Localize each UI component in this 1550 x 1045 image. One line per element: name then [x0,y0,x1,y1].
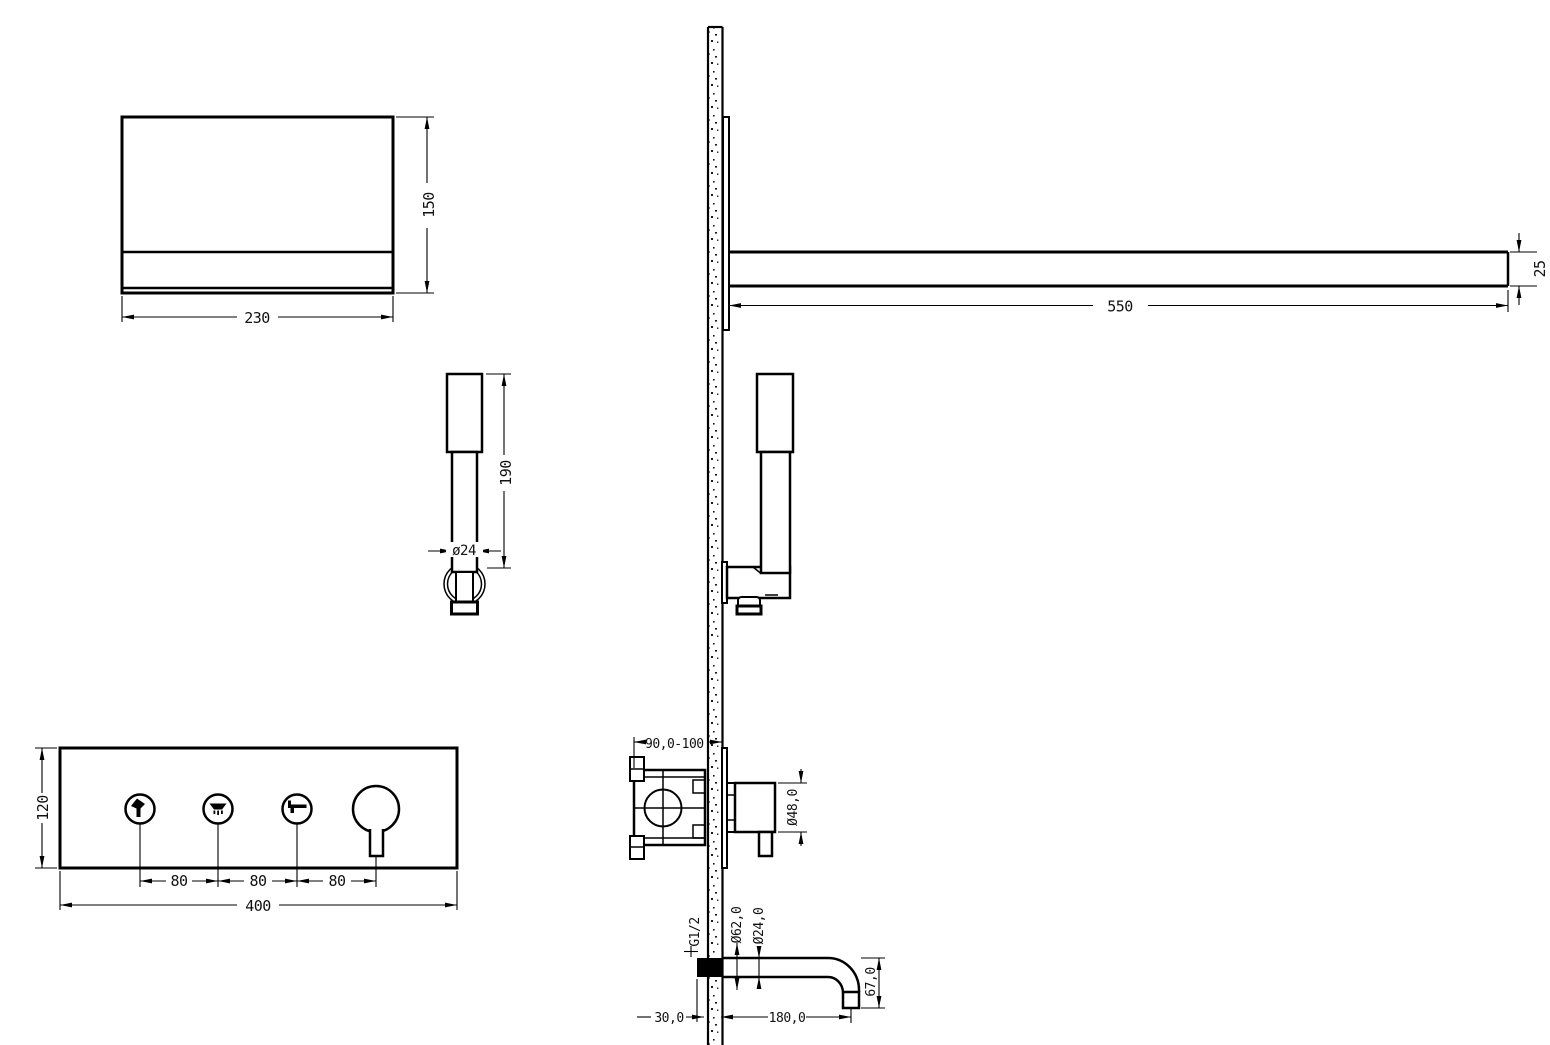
valve-knob-body [735,783,775,832]
button-bath-spout [283,795,312,824]
dim-spout-wall-stub: 30,0 [654,1011,683,1026]
dim-button-spacing-1: 80 [170,872,188,890]
dim-spout-reach: 180,0 [769,1011,806,1026]
dim-shower-head-height: 150 [420,192,438,218]
temperature-knob-icon [353,786,399,832]
dim-valve-install-depth: 90,0-100 [645,737,704,752]
view-hand-shower-front: ø24 190 [428,374,515,614]
spout-thread-block [697,958,723,977]
dim-knob-diameter: Ø48,0 [786,789,801,826]
dim-button-spacing-3: 80 [328,872,346,890]
view-shower-head-front: 230 150 [122,117,438,327]
dim-shower-head-length: 550 [1107,298,1133,316]
dim-spout-drop-height: 67,0 [864,967,879,996]
valve-knob-handle [759,832,772,856]
hand-shower-head-side [757,374,793,452]
dim-spout-pipe-diameter: Ø24,0 [752,908,767,945]
wall-hatch [708,27,723,1045]
technical-drawing-page: 230 150 25 550 ø24 [0,0,1550,1045]
dim-panel-height: 120 [34,795,52,821]
shower-head-body [122,117,393,293]
shower-system-dimension-drawing: 230 150 25 550 ø24 [0,0,1550,1045]
view-hand-shower-side [722,374,793,614]
hand-shower-connector [456,572,473,602]
shower-arm-wall-plate [723,117,729,330]
spout-outlet-cap [843,992,859,1008]
dim-hand-shower-diameter: ø24 [452,543,476,559]
dim-button-spacing-2: 80 [249,872,267,890]
wall-section [708,27,723,1045]
spout-elbow-outer [828,958,859,992]
knob-handle-stub [370,829,383,856]
dim-shower-head-thickness: 25 [1531,260,1549,277]
spout-elbow-inner [828,977,843,992]
view-shower-arm-side: 25 550 [723,117,1549,330]
dim-spout-escutcheon: Ø62,0 [730,907,745,944]
label-spout-thread: G1/2 [688,917,703,946]
dim-panel-width: 400 [245,897,271,915]
view-control-panel: 80 80 80 120 400 [34,748,457,915]
hand-shower-nut [452,602,478,614]
dim-shower-head-width: 230 [244,309,270,327]
view-bath-spout: G1/2 Ø62,0 Ø24,0 67,0 30,0 180,0 [637,907,885,1026]
bracket-outlet-cap [737,606,761,614]
hand-shower-handle-side [761,452,790,573]
hand-shower-head [447,374,482,452]
dim-hand-shower-length: 190 [497,460,515,486]
